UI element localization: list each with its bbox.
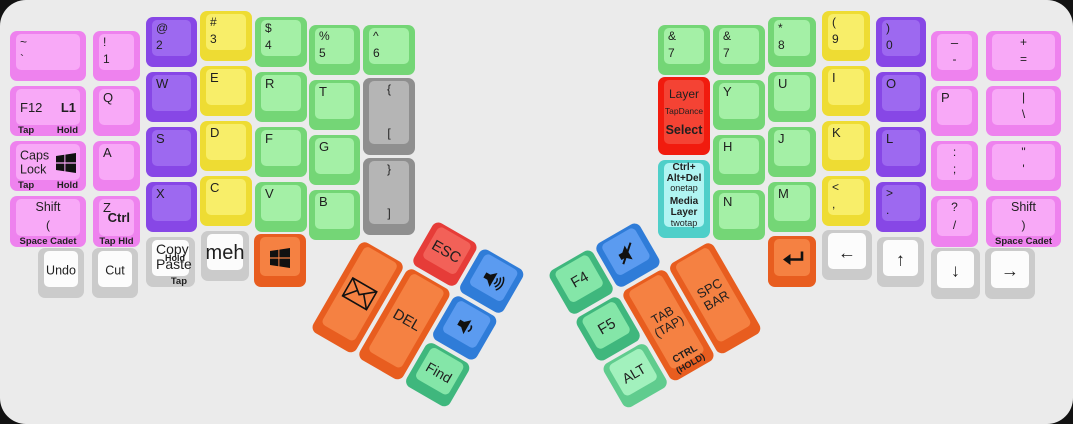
key-3-label: 3	[210, 33, 217, 46]
key-2[interactable]: @2	[146, 17, 197, 67]
key-arrow-down[interactable]: ↓	[931, 248, 980, 299]
key-n-label: N	[723, 195, 732, 209]
key-i-label: I	[832, 71, 836, 85]
key-plus-equals[interactable]: +=	[986, 31, 1061, 81]
key-ctrl-alt-del-media-label: Ctrl+Alt+DelonetapMediaLayertwotap	[658, 163, 710, 229]
key-e[interactable]: E	[200, 66, 252, 116]
key-3-label: #	[210, 16, 217, 29]
key-pipe-backslash-label: \	[986, 108, 1061, 121]
key-9-label: 9	[832, 33, 839, 46]
key-8-label: 8	[778, 39, 785, 52]
key-tilde-label: ~	[20, 36, 27, 49]
key-w[interactable]: W	[146, 72, 197, 122]
key-shift-left-label: Space Cadet	[10, 237, 86, 247]
key-7-outer[interactable]: &7	[658, 25, 710, 75]
key-7-inner-label: 7	[723, 47, 730, 60]
key-5-label: 5	[319, 47, 326, 60]
key-4[interactable]: $4	[255, 17, 307, 67]
key-z-ctrl-label: Tap Hld	[93, 237, 140, 247]
keyboard-canvas: ESCDELFindF4F5ALTTAB(TAP)CTRL(HOLD)SPCBA…	[0, 0, 1073, 424]
key-o-label: O	[886, 77, 896, 91]
key-a-label: A	[103, 146, 112, 160]
key-u[interactable]: U	[768, 72, 816, 122]
key-lbracket-label: [	[363, 127, 415, 140]
key-p[interactable]: P	[931, 86, 978, 136]
key-l[interactable]: L	[876, 127, 926, 177]
key-f12-l1-label: Hold	[57, 126, 78, 136]
key-f[interactable]: F	[255, 127, 307, 177]
key-slash-label: ?	[931, 201, 978, 214]
key-rbracket[interactable]: }]	[363, 158, 415, 235]
key-0-label: )	[886, 22, 890, 35]
key-p-label: P	[941, 91, 950, 105]
key-comma-label: <	[832, 181, 839, 194]
key-z-ctrl-label: Ctrl	[108, 211, 130, 225]
key-h-label: H	[723, 140, 732, 154]
key-slash-label: /	[931, 219, 978, 232]
key-6-label: ^	[373, 30, 379, 43]
key-meh-label: meh	[201, 243, 249, 265]
key-arrow-up[interactable]: ↑	[877, 237, 924, 287]
key-2-label: @	[156, 22, 168, 35]
key-3[interactable]: #3	[200, 11, 252, 61]
key-cut-label: Cut	[92, 264, 138, 278]
key-s[interactable]: S	[146, 127, 197, 177]
key-1-label: 1	[103, 53, 110, 66]
key-arrow-left-label: ←	[822, 243, 872, 262]
key-shift-right[interactable]: Shift)Space Cadet	[986, 196, 1061, 247]
key-v-label: V	[265, 187, 274, 201]
key-k[interactable]: K	[822, 121, 870, 171]
key-semicolon-label: ;	[931, 163, 978, 176]
key-k-label: K	[832, 126, 841, 140]
key-y-label: Y	[723, 85, 732, 99]
key-c-label: C	[210, 181, 219, 195]
key-r[interactable]: R	[255, 72, 307, 122]
key-minus-label: -	[931, 53, 978, 66]
key-9-label: (	[832, 16, 836, 29]
key-s-label: S	[156, 132, 165, 146]
key-capslock-win-label: Hold	[57, 181, 78, 191]
key-ctrl-alt-del-media[interactable]: Ctrl+Alt+DelonetapMediaLayertwotap	[658, 160, 710, 238]
key-a[interactable]: A	[93, 141, 140, 191]
key-undo[interactable]: Undo	[38, 248, 84, 298]
key-capslock-win[interactable]: CapsLockTapHold	[10, 141, 86, 191]
key-arrow-right-label: →	[985, 262, 1035, 281]
key-cut[interactable]: Cut	[92, 248, 138, 298]
key-0-label: 0	[886, 39, 893, 52]
key-shift-left-label: Shift	[10, 201, 86, 215]
key-f12-l1-label: L1	[61, 101, 76, 115]
key-j[interactable]: J	[768, 127, 816, 177]
key-5[interactable]: %5	[309, 25, 360, 75]
key-copy-paste-label: Tap	[171, 277, 187, 287]
key-quote[interactable]: "'	[986, 141, 1061, 191]
key-comma-label: ,	[832, 198, 835, 211]
key-z-ctrl[interactable]: ZCtrlTap Hld	[93, 196, 140, 247]
key-d-label: D	[210, 126, 219, 140]
key-f-label: F	[265, 132, 273, 146]
key-u-label: U	[778, 77, 787, 91]
key-6-label: 6	[373, 47, 380, 60]
key-t-label: T	[319, 85, 327, 99]
key-x[interactable]: X	[146, 182, 197, 232]
key-layer-tapdance[interactable]: LayerTapDanceSelect	[658, 77, 710, 155]
key-f12-l1-label: F12	[20, 101, 42, 115]
key-semicolon-label: :	[931, 146, 978, 159]
windows-icon	[254, 248, 306, 268]
key-plus-equals-label: =	[986, 53, 1061, 66]
key-period-label: >	[886, 187, 893, 200]
key-7-inner-label: &	[723, 30, 731, 43]
key-shift-left[interactable]: Shift(Space Cadet	[10, 196, 86, 247]
key-win-left[interactable]	[254, 234, 306, 287]
key-arrow-up-label: ↑	[877, 250, 924, 269]
key-enter[interactable]	[768, 236, 816, 287]
key-7-outer-label: 7	[668, 47, 675, 60]
enter-icon	[768, 249, 816, 270]
key-layer-tapdance-label: LayerTapDanceSelect	[658, 88, 710, 138]
key-g-label: G	[319, 140, 329, 154]
key-rbracket-label: ]	[363, 207, 415, 220]
key-comma[interactable]: <,	[822, 176, 870, 226]
key-7-outer-label: &	[668, 30, 676, 43]
key-shift-right-label: )	[986, 219, 1061, 232]
key-v[interactable]: V	[255, 182, 307, 232]
key-shift-right-label: Shift	[986, 201, 1061, 215]
key-j-label: J	[778, 132, 785, 146]
key-tilde-label: `	[20, 53, 24, 66]
key-8-label: *	[778, 22, 783, 35]
key-i[interactable]: I	[822, 66, 870, 116]
key-y[interactable]: Y	[713, 80, 765, 130]
key-d[interactable]: D	[200, 121, 252, 171]
key-e-label: E	[210, 71, 219, 85]
key-plus-equals-label: +	[986, 36, 1061, 49]
key-h[interactable]: H	[713, 135, 765, 185]
key-shift-left-label: (	[10, 219, 86, 232]
key-period-label: .	[886, 204, 889, 217]
key-quote-label: "	[986, 146, 1061, 159]
key-7-inner[interactable]: &7	[713, 25, 765, 75]
key-m-label: M	[778, 187, 789, 201]
key-minus[interactable]: –-	[931, 31, 978, 81]
key-copy-paste[interactable]: CopyHoldPasteTap	[146, 237, 195, 287]
key-4-label: 4	[265, 39, 272, 52]
key-q[interactable]: Q	[93, 86, 140, 136]
key-t[interactable]: T	[309, 80, 360, 130]
key-arrow-left[interactable]: ←	[822, 230, 872, 280]
key-minus-label: –	[931, 36, 978, 50]
key-shift-right-label: Space Cadet	[986, 237, 1061, 247]
key-b-label: B	[319, 195, 328, 209]
key-slash[interactable]: ?/	[931, 196, 978, 247]
key-lbracket[interactable]: {[	[363, 78, 415, 155]
key-x-label: X	[156, 187, 165, 201]
key-capslock-win-label: CapsLock	[20, 150, 49, 177]
key-copy-paste-label: Paste	[156, 257, 192, 272]
key-2-label: 2	[156, 39, 163, 52]
key-undo-label: Undo	[38, 264, 84, 278]
key-period[interactable]: >.	[876, 182, 926, 232]
key-l-label: L	[886, 132, 893, 146]
key-n[interactable]: N	[713, 190, 765, 240]
key-q-label: Q	[103, 91, 113, 105]
key-arrow-down-label: ↓	[931, 262, 980, 281]
key-5-label: %	[319, 30, 330, 43]
key-r-label: R	[265, 77, 274, 91]
windows-icon	[56, 153, 76, 173]
key-lbracket-label: {	[363, 83, 415, 96]
key-c[interactable]: C	[200, 176, 252, 226]
key-capslock-win-label: Tap	[18, 181, 34, 191]
key-pipe-backslash-label: |	[986, 91, 1061, 104]
key-tilde[interactable]: ~`	[10, 31, 86, 81]
key-9[interactable]: (9	[822, 11, 870, 61]
key-meh[interactable]: meh	[201, 231, 249, 281]
key-semicolon[interactable]: :;	[931, 141, 978, 191]
key-0[interactable]: )0	[876, 17, 926, 67]
key-6[interactable]: ^6	[363, 25, 415, 75]
key-f12-l1[interactable]: F12L1TapHold	[10, 86, 86, 136]
key-8[interactable]: *8	[768, 17, 816, 67]
key-1-label: !	[103, 36, 106, 49]
key-pipe-backslash[interactable]: |\	[986, 86, 1061, 136]
key-g[interactable]: G	[309, 135, 360, 185]
key-4-label: $	[265, 22, 272, 35]
key-m[interactable]: M	[768, 182, 816, 232]
key-quote-label: '	[986, 163, 1061, 176]
key-b[interactable]: B	[309, 190, 360, 240]
key-f12-l1-label: Tap	[18, 126, 34, 136]
key-rbracket-label: }	[363, 163, 415, 176]
key-1[interactable]: !1	[93, 31, 140, 81]
key-w-label: W	[156, 77, 168, 91]
key-arrow-right[interactable]: →	[985, 248, 1035, 299]
key-o[interactable]: O	[876, 72, 926, 122]
